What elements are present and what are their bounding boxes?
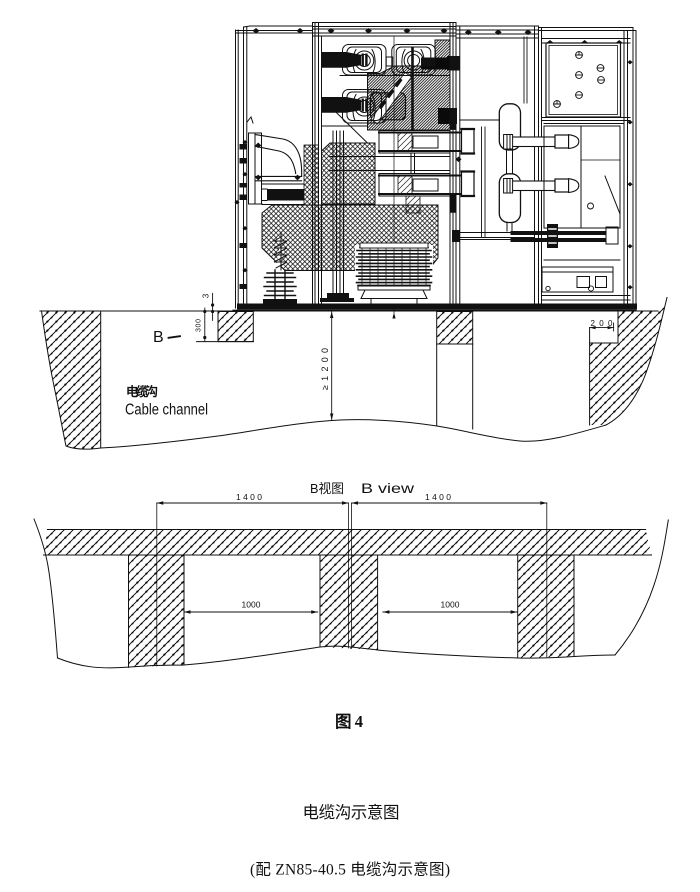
svg-text:B视图: B视图 [310,481,344,496]
svg-text:B view: B view [361,480,415,496]
svg-text:1000: 1000 [242,600,261,610]
svg-text:1000: 1000 [441,600,460,610]
svg-text:电缆沟示意图: 电缆沟示意图 [303,803,400,822]
svg-text:Cable channel: Cable channel [125,402,208,419]
svg-text:3: 3 [202,293,211,298]
svg-text:1400: 1400 [236,492,262,502]
svg-text:电缆沟: 电缆沟 [126,384,158,399]
svg-text:≥1200: ≥1200 [320,348,330,390]
svg-text:1400: 1400 [425,492,451,502]
svg-text:B: B [153,329,164,346]
svg-text:300: 300 [196,319,203,332]
svg-text:200: 200 [591,319,614,328]
svg-text:(配 ZN85-40.5 电缆沟示意图): (配 ZN85-40.5 电缆沟示意图) [250,860,450,879]
svg-text:图 4: 图 4 [335,712,363,731]
